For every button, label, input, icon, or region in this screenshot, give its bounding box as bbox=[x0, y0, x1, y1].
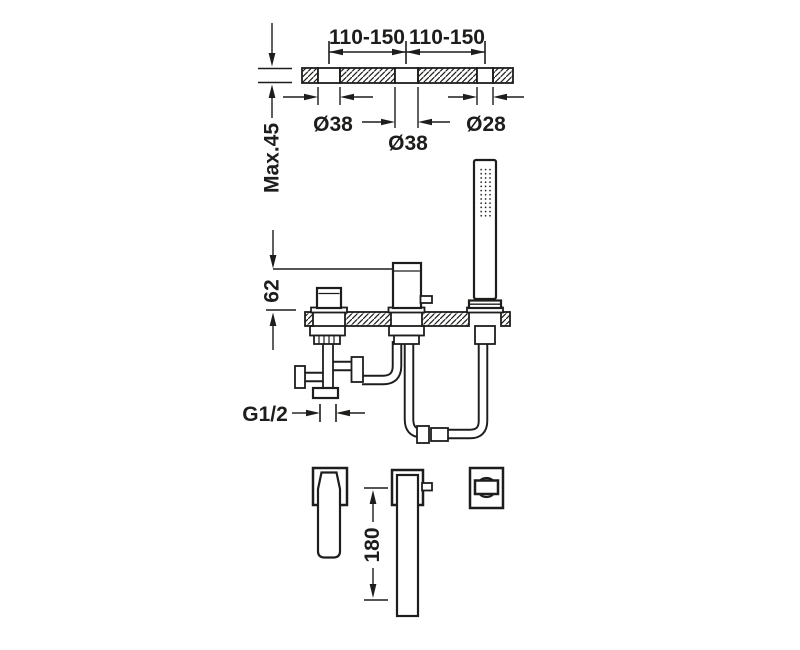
deck-hatch-segment bbox=[340, 68, 395, 83]
plan-view-handle bbox=[313, 468, 347, 558]
hole-left-diameter-label: Ø38 bbox=[313, 113, 353, 136]
dim-ticks bbox=[258, 69, 292, 83]
arrowhead-down-icon bbox=[269, 53, 276, 67]
arrowhead-left-icon bbox=[340, 94, 354, 100]
handle-lever bbox=[318, 473, 340, 558]
arrowhead-right-icon bbox=[463, 94, 477, 100]
faucet-installation-drawing: 110-150 110-150 Ø38 bbox=[0, 0, 800, 650]
plan-view-spout: 180 bbox=[361, 470, 432, 616]
handshower-hose bbox=[448, 344, 483, 434]
arrowhead-right-icon bbox=[381, 119, 395, 125]
arrowhead-up-icon bbox=[270, 313, 277, 327]
plan-view-trim: 180 bbox=[313, 468, 503, 616]
rim-hatch-segment bbox=[501, 312, 510, 326]
mount-hole-center bbox=[395, 68, 418, 83]
arrowhead-left-icon bbox=[329, 49, 343, 55]
bath-rim-section bbox=[305, 312, 510, 326]
dimension-inlet-thread: G1/2 bbox=[242, 403, 365, 426]
dimension-hole-left-diameter: Ø38 bbox=[283, 94, 373, 136]
dimension-hole-right-diameter: Ø28 bbox=[448, 94, 524, 136]
technical-drawing-page: 110-150 110-150 Ø38 bbox=[0, 0, 800, 650]
diverter-knob bbox=[421, 296, 433, 303]
arrowhead-left-icon bbox=[336, 410, 350, 416]
arrowhead-down-icon bbox=[270, 255, 277, 269]
arrowhead-left-icon bbox=[418, 119, 432, 125]
handshower-spray-face bbox=[478, 167, 492, 217]
spout-height-label: 62 bbox=[260, 279, 283, 302]
spout-body bbox=[393, 263, 421, 308]
arrowhead-down-icon bbox=[370, 584, 377, 598]
holder-clip bbox=[475, 481, 498, 495]
valve-handle-knob bbox=[317, 288, 341, 308]
span-left-label: 110-150 bbox=[329, 26, 405, 49]
deck-hatch-segment bbox=[302, 68, 318, 83]
deck-hatch-segment bbox=[493, 68, 513, 83]
rim-hatch-segment bbox=[305, 312, 313, 326]
deck-hatch-segment bbox=[418, 68, 477, 83]
hose-coupling-fitting bbox=[431, 428, 448, 441]
mount-hole-left bbox=[318, 68, 340, 83]
dim-ticks bbox=[320, 404, 336, 422]
arrowhead-left-icon bbox=[493, 94, 507, 100]
spout-threaded-shank bbox=[394, 336, 419, 345]
spout-side-nub bbox=[422, 483, 432, 491]
valve-threaded-shank bbox=[314, 336, 340, 345]
deck-max-thickness-label: Max.45 bbox=[260, 123, 283, 193]
spout-mount-collar bbox=[389, 326, 424, 336]
arrowhead-right-icon bbox=[304, 94, 318, 100]
dimension-deck-thickness: Max.45 bbox=[258, 23, 292, 193]
dimension-spout-projection: 180 bbox=[361, 488, 388, 600]
hose-elbow-fitting bbox=[417, 426, 429, 443]
pipe-union-fitting bbox=[352, 357, 364, 382]
arrowhead-right-icon bbox=[471, 49, 485, 55]
spout-down-pipe-bore bbox=[409, 341, 421, 433]
arrowhead-right-icon bbox=[306, 410, 320, 416]
valve-stem bbox=[323, 343, 333, 388]
valve-mount-collar bbox=[310, 326, 345, 336]
hole-center-diameter-label: Ø38 bbox=[388, 132, 428, 155]
arrowhead-up-icon bbox=[370, 490, 377, 504]
dimension-hole-center-diameter: Ø38 bbox=[362, 119, 450, 155]
inlet-fitting-left bbox=[295, 366, 305, 388]
mount-hole-right bbox=[477, 68, 493, 83]
rim-hatch-segment bbox=[345, 312, 391, 326]
rim-hatch-segment bbox=[422, 312, 469, 326]
supply-pipework bbox=[295, 341, 483, 443]
spout-arm bbox=[397, 475, 418, 616]
deck-band bbox=[302, 68, 513, 83]
handshower-mount-shank bbox=[475, 326, 495, 344]
inlet-thread-label: G1/2 bbox=[242, 403, 288, 426]
valve-thread-foot bbox=[313, 388, 338, 398]
arrowhead-up-icon bbox=[269, 85, 276, 99]
under-deck-bodies bbox=[310, 326, 495, 344]
above-deck-components bbox=[311, 160, 503, 313]
hole-right-diameter-label: Ø28 bbox=[466, 113, 506, 136]
plan-view-holder bbox=[470, 468, 503, 508]
arrowhead-left-icon bbox=[406, 49, 420, 55]
dimension-hole-spacing: 110-150 110-150 bbox=[329, 26, 485, 64]
section-view-mixer: 62 bbox=[242, 160, 510, 443]
arrowhead-right-icon bbox=[392, 49, 406, 55]
span-right-label: 110-150 bbox=[409, 26, 485, 49]
spout-projection-label: 180 bbox=[361, 527, 384, 562]
